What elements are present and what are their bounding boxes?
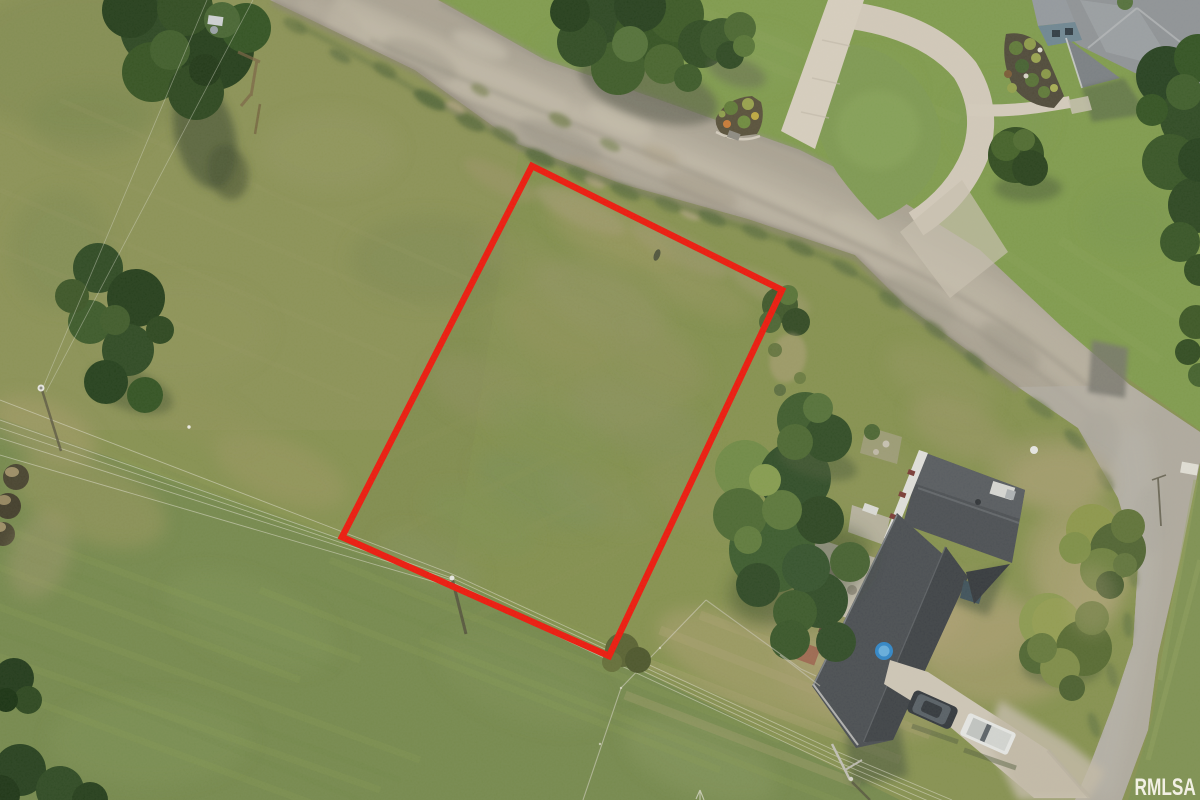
svg-text:RMLSA: RMLSA xyxy=(1135,774,1196,800)
